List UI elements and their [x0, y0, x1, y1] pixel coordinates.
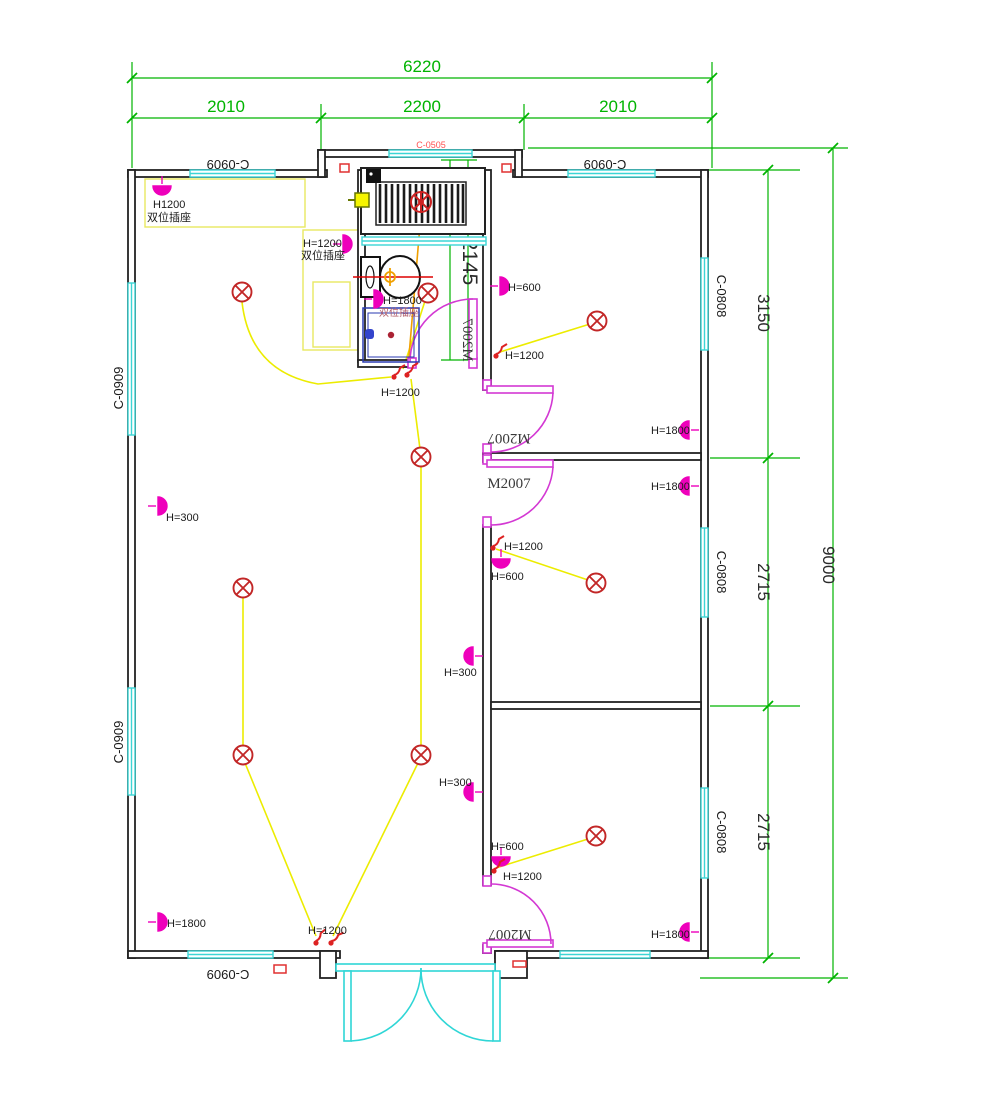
entry-swing-right	[421, 968, 493, 1041]
sink-handle	[365, 329, 374, 339]
lamp-icon	[234, 746, 253, 765]
lamp-icon	[233, 283, 252, 302]
socket-label: H=1800	[167, 918, 206, 930]
window-porch-c0505	[389, 150, 472, 157]
interior-doors	[408, 299, 553, 953]
room-divider-1	[491, 453, 701, 460]
core-wall-seg3	[483, 525, 491, 885]
lamp-icon	[234, 579, 253, 598]
window-code: C-0909	[207, 157, 250, 172]
socket-label: H=1800	[651, 481, 690, 493]
window-code: C-0808	[714, 275, 729, 318]
socket-icon	[148, 913, 167, 931]
socket-label: H=300	[444, 667, 477, 679]
wiring	[242, 213, 590, 936]
window-left-2	[128, 688, 135, 795]
switch-label: H=1200	[308, 925, 347, 937]
window-right-2	[701, 528, 708, 617]
window-bath-partition	[362, 237, 486, 245]
socket-label-cn: 双位插座	[147, 210, 191, 224]
switch-label: H=1200	[505, 350, 544, 362]
electrical-labels: H1200 双位插座 H=1200 双位插座 H=1800 双位插座 H=600…	[147, 199, 690, 941]
lamp-icon	[412, 448, 431, 467]
dim-total-width: 6220	[403, 57, 441, 76]
dim-seg-center: 2200	[403, 97, 441, 116]
window-code: C-0909	[207, 967, 250, 982]
switch-icon	[490, 536, 504, 551]
water-heater	[348, 168, 485, 234]
door-leaf	[487, 460, 553, 467]
socket-label: H=300	[166, 512, 199, 524]
socket-label: H=600	[491, 841, 524, 853]
ceiling-lamps	[233, 283, 607, 846]
window-right-3	[701, 788, 708, 878]
floor-plan-canvas: 6220 2010 2200 2010 3150 2715 2715 9000 …	[0, 0, 1000, 1103]
window-bottom-left	[188, 951, 273, 958]
door-code: M2007	[487, 430, 531, 446]
lamp-icon	[412, 746, 431, 765]
entry-swing-left	[351, 968, 421, 1041]
floor-plan-drawing: 6220 2010 2200 2010 3150 2715 2715 9000 …	[0, 0, 1000, 1103]
socket-label-cn: 双位插座	[301, 248, 345, 262]
door-code: M2007	[488, 926, 532, 942]
socket-icon	[464, 647, 483, 665]
entry-leaf-right	[493, 971, 500, 1041]
door-leaf	[487, 386, 553, 393]
room-divider-2	[491, 702, 701, 709]
lamp-icon	[588, 312, 607, 331]
switches	[312, 344, 507, 947]
dim-seg-left: 2010	[207, 97, 245, 116]
door-code: M2007	[459, 318, 475, 362]
window-code: C-0909	[111, 721, 126, 764]
marker-icon	[340, 164, 349, 172]
socket-label: H=600	[491, 571, 524, 583]
socket-label: H=1800	[383, 295, 422, 307]
valve-icon	[355, 193, 369, 207]
dim-room-bottom: 2715	[754, 813, 773, 851]
marker-icon	[502, 164, 511, 172]
socket-label: H1200	[153, 199, 185, 211]
wire-entry-right	[333, 763, 418, 936]
wire-bath-to-lamp1	[242, 302, 391, 384]
switch-label: H=1200	[504, 541, 543, 553]
socket-label: H=1800	[651, 425, 690, 437]
window-code: C-0909	[111, 367, 126, 410]
switch-label: H=1200	[503, 871, 542, 883]
wire-room1	[500, 324, 590, 352]
lamp-icon	[587, 827, 606, 846]
window-right-1	[701, 258, 708, 350]
window-bottom-right	[560, 951, 650, 958]
dim-room-mid: 2715	[754, 563, 773, 601]
entry-frame	[336, 964, 495, 971]
socket-label: H=300	[439, 777, 472, 789]
window-labels: C-0909 C-0909 C-0909 C-0909 C-0909 C-080…	[111, 140, 729, 982]
sink-drain	[388, 332, 394, 338]
counter-side-inner	[313, 282, 350, 347]
lamp-icon	[587, 574, 606, 593]
dim-total-height: 9000	[819, 546, 838, 584]
window-code: C-0808	[714, 811, 729, 854]
wire-entry-left	[245, 763, 316, 936]
entry-leaf-left	[344, 971, 351, 1041]
window-code: C-0808	[714, 551, 729, 594]
socket-label-cn: 双位插座	[379, 306, 419, 319]
window-left-1	[128, 283, 135, 435]
socket-label: H=1800	[651, 929, 690, 941]
entry-double-door	[336, 964, 500, 1041]
boiler-unit	[366, 169, 381, 183]
socket-label: H=1200	[303, 238, 342, 250]
dim-seg-right: 2010	[599, 97, 637, 116]
socket-icon	[490, 277, 509, 295]
switch-label: H=1200	[381, 387, 420, 399]
dim-room-top: 3150	[754, 294, 773, 332]
door-code: M2007	[487, 476, 531, 492]
marker-icon	[274, 965, 286, 973]
socket-icon	[148, 497, 167, 515]
window-code-red: C-0505	[416, 140, 446, 150]
entry-post-left	[320, 951, 336, 978]
socket-label: H=600	[508, 282, 541, 294]
window-code: C-0909	[584, 157, 627, 172]
